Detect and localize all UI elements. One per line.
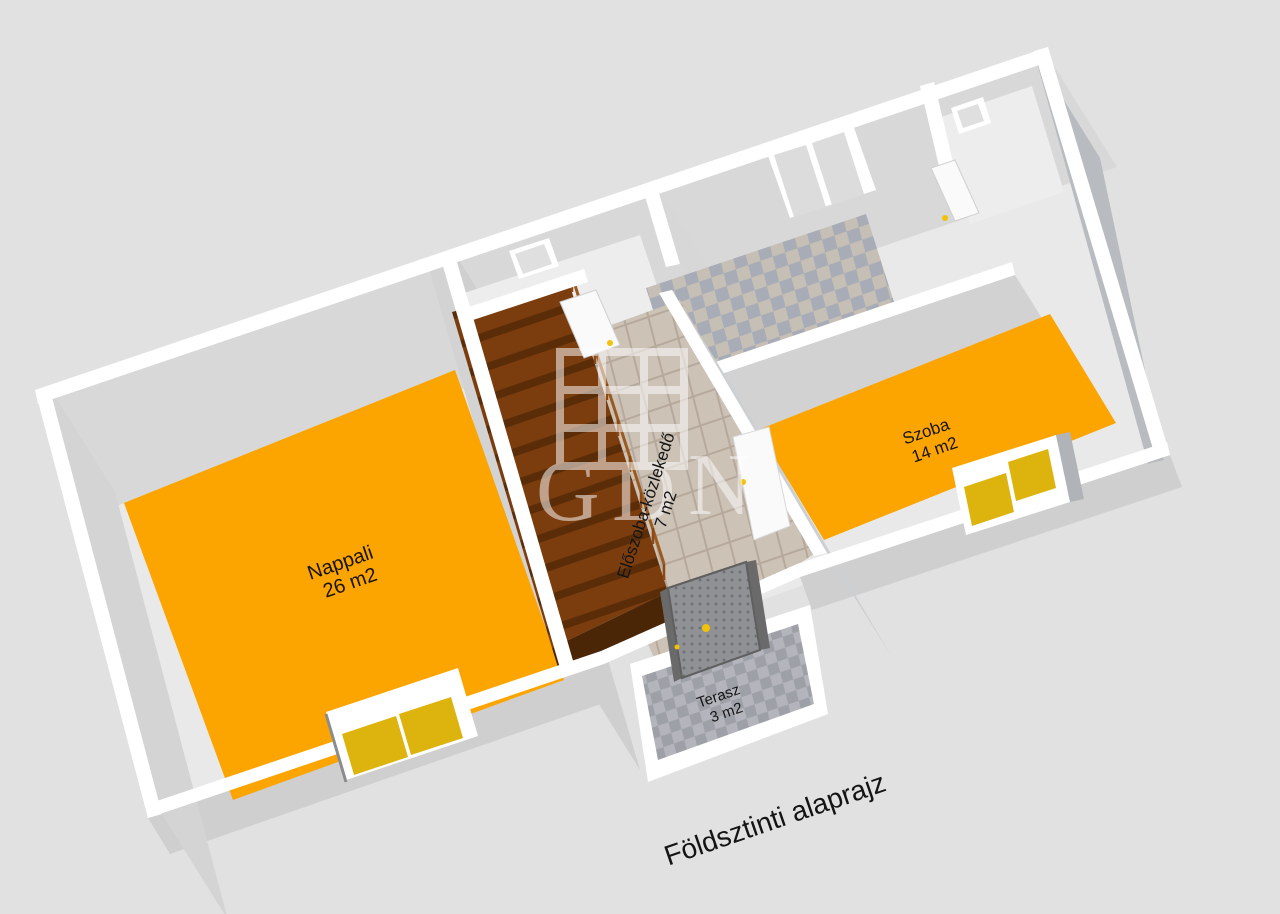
watermark-letter-g: G bbox=[536, 443, 600, 540]
door-knob-icon bbox=[702, 624, 710, 632]
floorplan-3d-render: D G N Nappali 26 m2 Szoba 14 m2 Előszoba… bbox=[0, 0, 1280, 914]
floorplan-canvas: D G N Nappali 26 m2 Szoba 14 m2 Előszoba… bbox=[0, 0, 1280, 914]
door-keyhole-icon bbox=[675, 645, 680, 650]
door-handle-icon bbox=[942, 215, 948, 221]
door-handle-icon bbox=[607, 340, 613, 346]
watermark-letter-n: N bbox=[688, 437, 752, 534]
